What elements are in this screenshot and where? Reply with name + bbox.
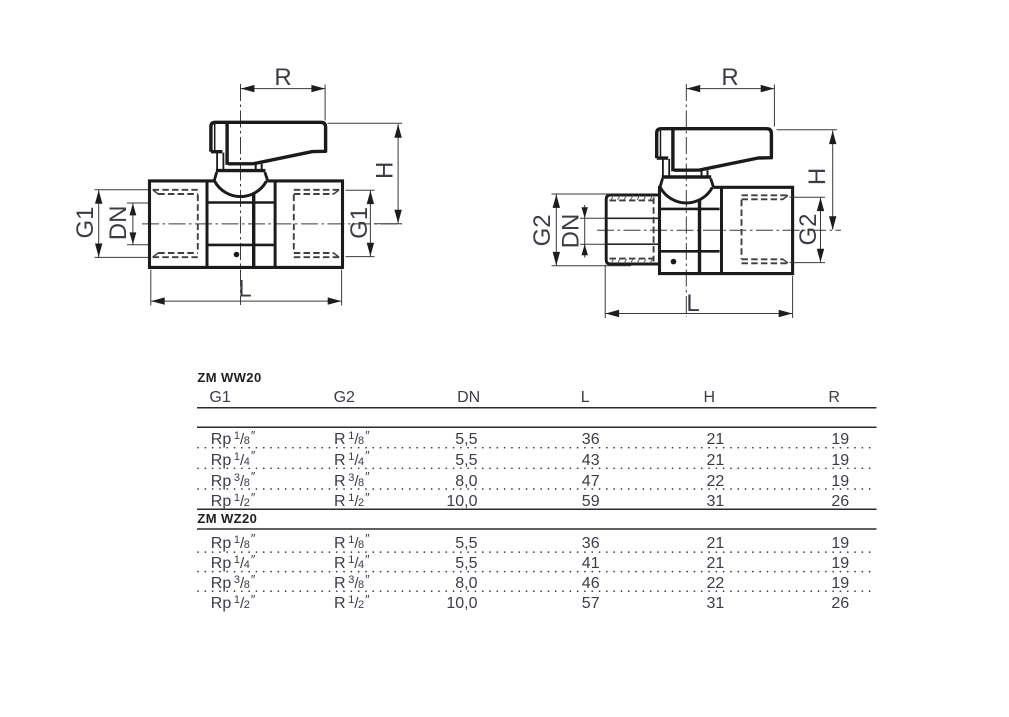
svg-text:R: R — [721, 64, 738, 91]
svg-text:DN: DN — [557, 214, 584, 249]
svg-text:L: L — [238, 275, 251, 302]
svg-text:G1: G1 — [72, 206, 99, 238]
svg-text:DN: DN — [105, 206, 132, 241]
svg-text:L: L — [686, 290, 699, 317]
svg-text:H: H — [804, 168, 831, 185]
svg-text:G2: G2 — [795, 213, 822, 245]
svg-text:G2: G2 — [529, 214, 556, 246]
svg-text:G1: G1 — [346, 207, 373, 239]
svg-text:R: R — [274, 64, 291, 91]
svg-text:H: H — [372, 162, 399, 179]
